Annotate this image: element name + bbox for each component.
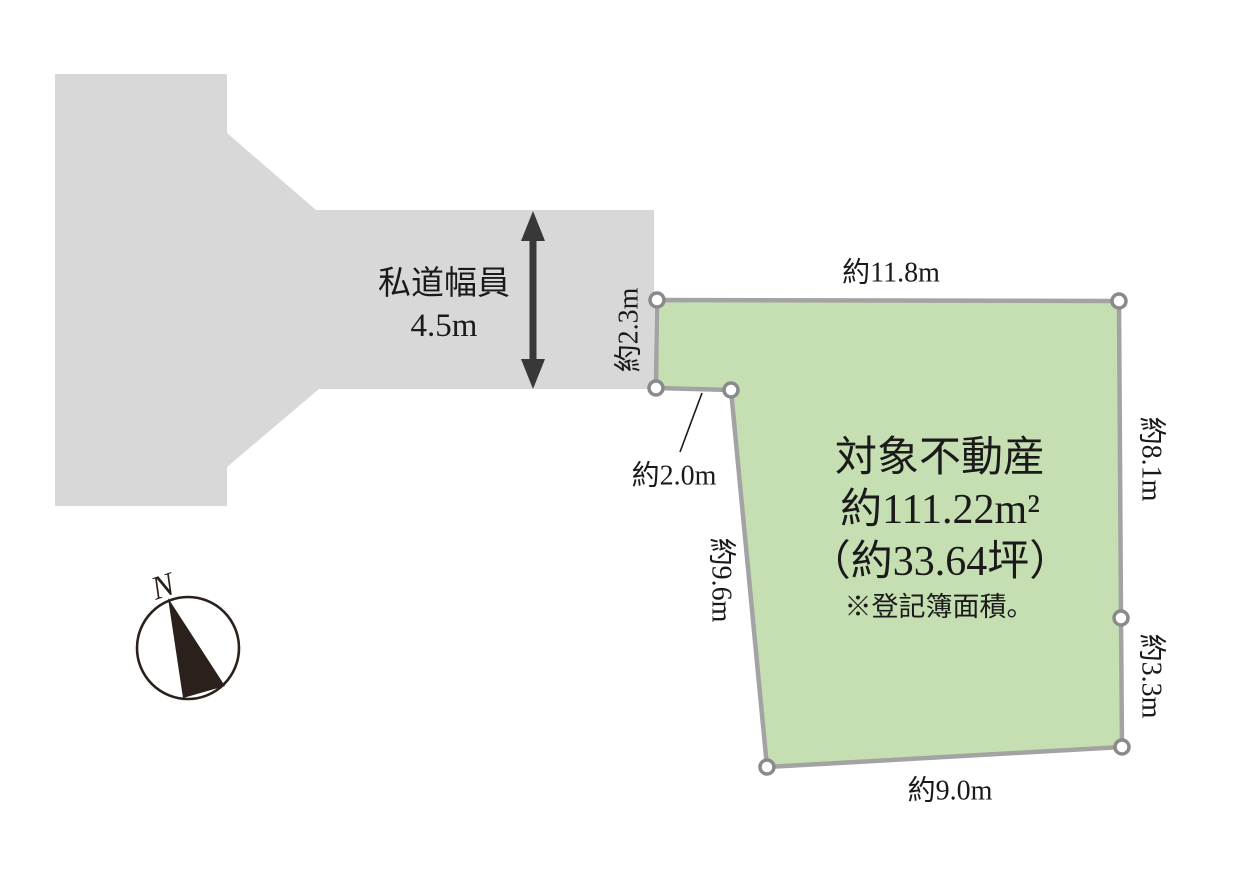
dim-notch: 約2.0m: [632, 460, 717, 492]
vertex-marker: [760, 760, 774, 774]
vertex-marker: [1114, 611, 1128, 625]
vertex-marker: [649, 381, 663, 395]
plot-area-tsubo: （約33.64坪）: [809, 539, 1072, 585]
dim-south-edge: 約9.0m: [908, 775, 993, 807]
dim-east-upper-edge: 約8.1m: [1136, 417, 1168, 502]
private-road-shape: [55, 74, 654, 506]
vertex-marker: [724, 383, 738, 397]
dim-west-edge: 約9.6m: [706, 538, 738, 623]
plot-title: 対象不動産: [835, 435, 1045, 481]
vertex-marker: [1112, 294, 1126, 308]
plot-area-m2: 約111.22m²: [840, 487, 1040, 533]
plot-area-note: ※登記簿面積。: [845, 592, 1034, 622]
dim-frontage-left: 約2.3m: [613, 287, 645, 372]
diagram-canvas: 私道幅員 4.5m 約11.8m 約2.3m 約2.0m 約9.6m 約8.1m…: [0, 0, 1236, 896]
north-arrow-wedge: [168, 598, 225, 698]
dim-top-edge: 約11.8m: [842, 257, 940, 289]
road-width-label: 4.5m: [411, 308, 478, 344]
land-plot-diagram: 私道幅員 4.5m 約11.8m 約2.3m 約2.0m 約9.6m 約8.1m…: [0, 0, 1236, 896]
vertex-marker: [1115, 740, 1129, 754]
plot-info-block: 対象不動産 約111.22m² （約33.64坪） ※登記簿面積。: [809, 435, 1072, 622]
road-name-label: 私道幅員: [378, 265, 510, 302]
dim-east-lower-edge: 約3.3m: [1136, 634, 1168, 719]
subject-plot-polygon: [656, 300, 1122, 767]
north-label: N: [146, 566, 181, 608]
leader-line-notch: [680, 393, 702, 452]
compass: N: [137, 566, 239, 699]
vertex-marker: [650, 293, 664, 307]
